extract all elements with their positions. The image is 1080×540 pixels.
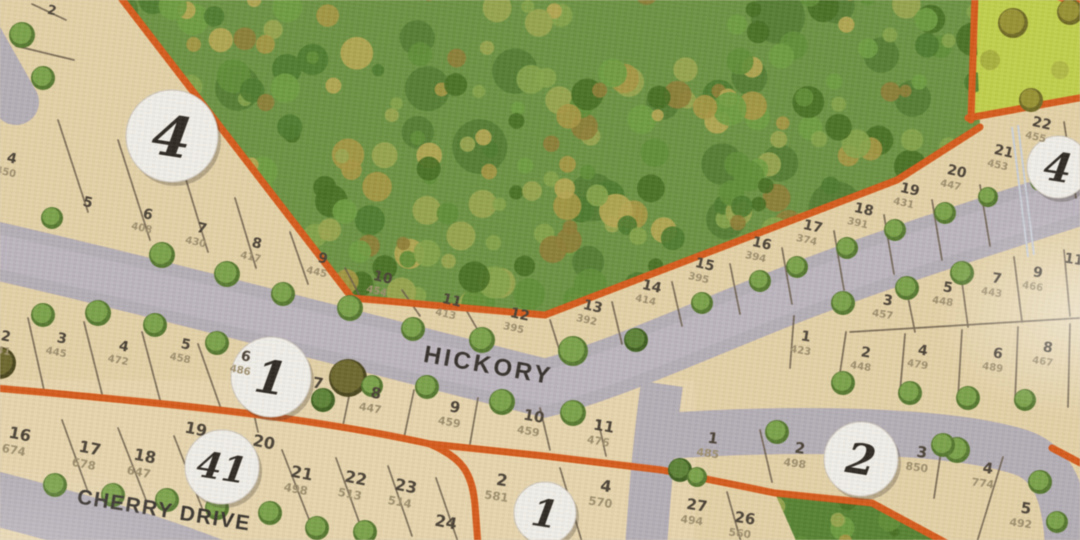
forest-tree-blob [586, 184, 608, 206]
tree [831, 291, 855, 315]
forest-tree-blob [693, 95, 717, 119]
forest-tree-blob [447, 49, 466, 68]
forest-tree-blob [858, 38, 878, 58]
forest-tree-blob [306, 51, 318, 63]
tree-canopy [1016, 390, 1033, 407]
forest-tree-blob [514, 256, 535, 277]
forest-tree-blob [412, 196, 441, 225]
forest-tree-blob [747, 21, 770, 44]
forest-tree-blob [318, 218, 341, 241]
tree-canopy [207, 332, 226, 351]
forest-tree-blob [795, 88, 813, 106]
forest-tree-blob [522, 181, 542, 201]
forest-tree-blob [563, 220, 578, 235]
tree [401, 317, 425, 341]
forest-tree-blob [204, 6, 225, 27]
forest-tree-blob [410, 131, 425, 146]
forest-tree-blob [731, 195, 753, 217]
forest-tree-blob [316, 4, 339, 27]
tree-canopy [43, 208, 60, 225]
forest-tree-blob [257, 94, 274, 111]
tree-canopy [1048, 512, 1065, 529]
park-left-boundary [971, 0, 975, 120]
tree-canopy [838, 238, 855, 255]
forest-tree-blob [559, 156, 576, 173]
forest-tree-blob [509, 113, 525, 129]
forest-tree-blob [554, 178, 575, 199]
tree [831, 371, 855, 395]
tree [214, 261, 240, 287]
forest-tree-blob [751, 197, 766, 212]
tree-canopy [833, 292, 852, 311]
tree-canopy [403, 318, 422, 337]
forest-tree-blob [598, 59, 627, 88]
tree [337, 295, 363, 321]
tree-canopy [491, 390, 512, 411]
tree [786, 256, 808, 278]
forest-tree-blob [556, 104, 581, 129]
tree-canopy [471, 328, 492, 349]
tree-canopy [33, 304, 52, 323]
forest-tree-blob [349, 240, 372, 263]
lot-number: 11 [1063, 250, 1080, 269]
tree-canopy [1059, 0, 1080, 21]
tree [931, 433, 955, 457]
tree [1014, 389, 1036, 411]
forest-tree-blob [770, 131, 787, 148]
forest-tree-blob [355, 205, 385, 235]
tree [271, 282, 295, 306]
park-grass-blob [980, 50, 1000, 70]
forest-tree-blob [592, 83, 607, 98]
forest-tree-blob [838, 16, 854, 32]
forest-tree-blob [459, 261, 490, 292]
tree-canopy [45, 474, 64, 493]
plat-map-photo: 4414112244505640874308417944510454114131… [0, 0, 1080, 540]
tree-canopy [751, 271, 768, 288]
forest-tree-blob [460, 136, 475, 151]
tree-canopy [339, 296, 360, 317]
tree-canopy [936, 203, 953, 220]
tree [836, 237, 858, 259]
block-marker-number: 41 [194, 443, 250, 492]
road-vertical [646, 384, 662, 540]
tree [31, 303, 55, 327]
tree [560, 400, 586, 426]
tree-canopy [417, 376, 436, 395]
forest-tree-blob [543, 135, 560, 152]
forest-tree-blob [516, 65, 545, 94]
forest-tree-blob [629, 227, 647, 245]
tree [31, 66, 55, 90]
tree-canopy [626, 329, 645, 348]
tree [687, 467, 707, 487]
forest-tree-blob [362, 172, 392, 202]
forest-tree-blob [652, 109, 664, 121]
tree-canopy [260, 502, 279, 521]
tree [624, 328, 648, 352]
tree [898, 381, 922, 405]
tree-canopy [331, 360, 364, 393]
forest-tree-blob [233, 27, 256, 50]
forest-tree-blob [825, 114, 852, 141]
tree [884, 219, 906, 241]
forest-tree-blob [727, 14, 747, 34]
tree-canopy [670, 459, 689, 478]
tree [978, 187, 998, 207]
tree [85, 300, 111, 326]
forest-tree-blob [901, 129, 923, 151]
forest-tree-blob [472, 85, 485, 98]
tree-canopy [933, 434, 952, 453]
forest-tree-blob [580, 165, 595, 180]
tree [205, 331, 229, 355]
tree [558, 336, 588, 366]
lot-label: 11 [1063, 250, 1080, 269]
forest-tree-blob [325, 78, 341, 94]
forest-tree-blob [517, 157, 533, 173]
tree-canopy [1000, 9, 1025, 34]
forest-tree-blob [673, 57, 698, 82]
forest-tree-blob [335, 149, 349, 163]
forest-tree-blob [444, 73, 467, 96]
tree [149, 242, 175, 268]
tree-canopy [562, 401, 583, 422]
tree-canopy [788, 257, 805, 274]
forest-tree-blob [385, 108, 399, 122]
forest-tree-blob [911, 74, 926, 89]
tree-canopy [307, 517, 326, 536]
tree-canopy [151, 243, 172, 264]
tree [765, 420, 789, 444]
forest-tree-blob [408, 42, 432, 66]
forest-tree-blob [441, 254, 456, 269]
tree [329, 359, 367, 397]
tree [9, 22, 35, 48]
forest-tree-blob [509, 185, 523, 199]
forest-tree-blob [637, 174, 665, 202]
tree [305, 516, 329, 540]
forest-tree-blob [486, 235, 502, 251]
forest-tree-blob [776, 116, 790, 130]
tree-canopy [897, 277, 916, 296]
tree-canopy [11, 23, 32, 44]
tree-canopy [900, 382, 919, 401]
forest-tree-blob [186, 37, 201, 52]
forest-tree-blob [372, 142, 398, 168]
tree [43, 473, 67, 497]
forest-tree-blob [713, 92, 747, 126]
tree [41, 207, 63, 229]
forest-tree-blob [525, 9, 553, 37]
tree-canopy [1021, 89, 1040, 108]
forest-tree-blob [209, 28, 233, 52]
tree-canopy [767, 421, 786, 440]
tree [934, 202, 956, 224]
forest-tree-blob [437, 203, 459, 225]
tree-canopy [33, 67, 52, 86]
forest-tree-blob [831, 97, 846, 112]
forest-tree-blob [915, 33, 939, 57]
forest-tree-blob [480, 41, 494, 55]
forest-tree-blob [758, 178, 774, 194]
forest-tree-blob [882, 28, 897, 43]
forest-tree-blob [313, 176, 336, 199]
tree-canopy [145, 314, 164, 333]
tree-canopy [355, 521, 374, 540]
tree-canopy [87, 301, 108, 322]
tree-canopy [833, 372, 852, 391]
tree [956, 386, 980, 410]
forest-tree-blob [475, 129, 491, 145]
forest-tree-blob [372, 64, 384, 76]
forest-tree-blob [390, 97, 403, 110]
forest-tree-blob [640, 138, 668, 166]
tree-canopy [560, 337, 585, 362]
forest-tree-blob [826, 74, 842, 90]
forest-tree-blob [730, 215, 746, 231]
tree [143, 313, 167, 337]
forest-tree-blob [914, 8, 937, 31]
wedge-tree-blob [831, 513, 845, 527]
lot-address: 560 [728, 525, 752, 540]
forest-tree-blob [647, 86, 670, 109]
tree [489, 389, 515, 415]
tree [1028, 470, 1052, 494]
tree [258, 501, 282, 525]
forest-tree-blob [332, 199, 357, 224]
forest-tree-blob [481, 164, 497, 180]
forest-tree-blob [493, 198, 507, 212]
tree-canopy [1030, 471, 1049, 490]
forest-tree-blob [446, 221, 475, 250]
forest-tree-blob [256, 35, 275, 54]
tree-canopy [689, 468, 704, 483]
tree-canopy [952, 262, 971, 281]
tree-canopy [693, 293, 710, 310]
forest-tree-blob [414, 240, 441, 267]
forest-tree-blob [746, 2, 762, 18]
forest-tree-blob [417, 157, 441, 181]
forest-tree-blob [899, 85, 911, 97]
tree-canopy [216, 262, 237, 283]
tree [1046, 511, 1068, 533]
park-grass-blob [1051, 61, 1069, 79]
forest-tree-blob [661, 226, 685, 250]
tree-canopy [273, 283, 292, 302]
tree [895, 276, 919, 300]
tree [691, 292, 713, 314]
forest-tree-blob [881, 82, 901, 102]
tree [749, 270, 771, 292]
tree-canopy [980, 188, 995, 203]
tree [1019, 88, 1043, 112]
forest-tree-blob [469, 190, 497, 218]
forest-tree-blob [724, 152, 749, 177]
forest-tree-blob [727, 48, 754, 75]
plat-map: 4414112244505640874308417944510454114131… [0, 0, 1080, 540]
tree [998, 8, 1028, 38]
tree [415, 375, 439, 399]
forest-tree-blob [628, 105, 657, 134]
forest-tree-blob [277, 114, 302, 139]
tree-canopy [886, 220, 903, 237]
tree-canopy [958, 387, 977, 406]
forest-tree-blob [942, 34, 956, 48]
forest-tree-blob [811, 131, 827, 147]
forest-tree-blob [397, 237, 410, 250]
forest-tree-blob [271, 74, 300, 103]
forest-tree-blob [539, 236, 566, 263]
forest-tree-blob [340, 37, 373, 70]
forest-tree-blob [769, 43, 794, 68]
forest-tree-blob [821, 177, 839, 195]
